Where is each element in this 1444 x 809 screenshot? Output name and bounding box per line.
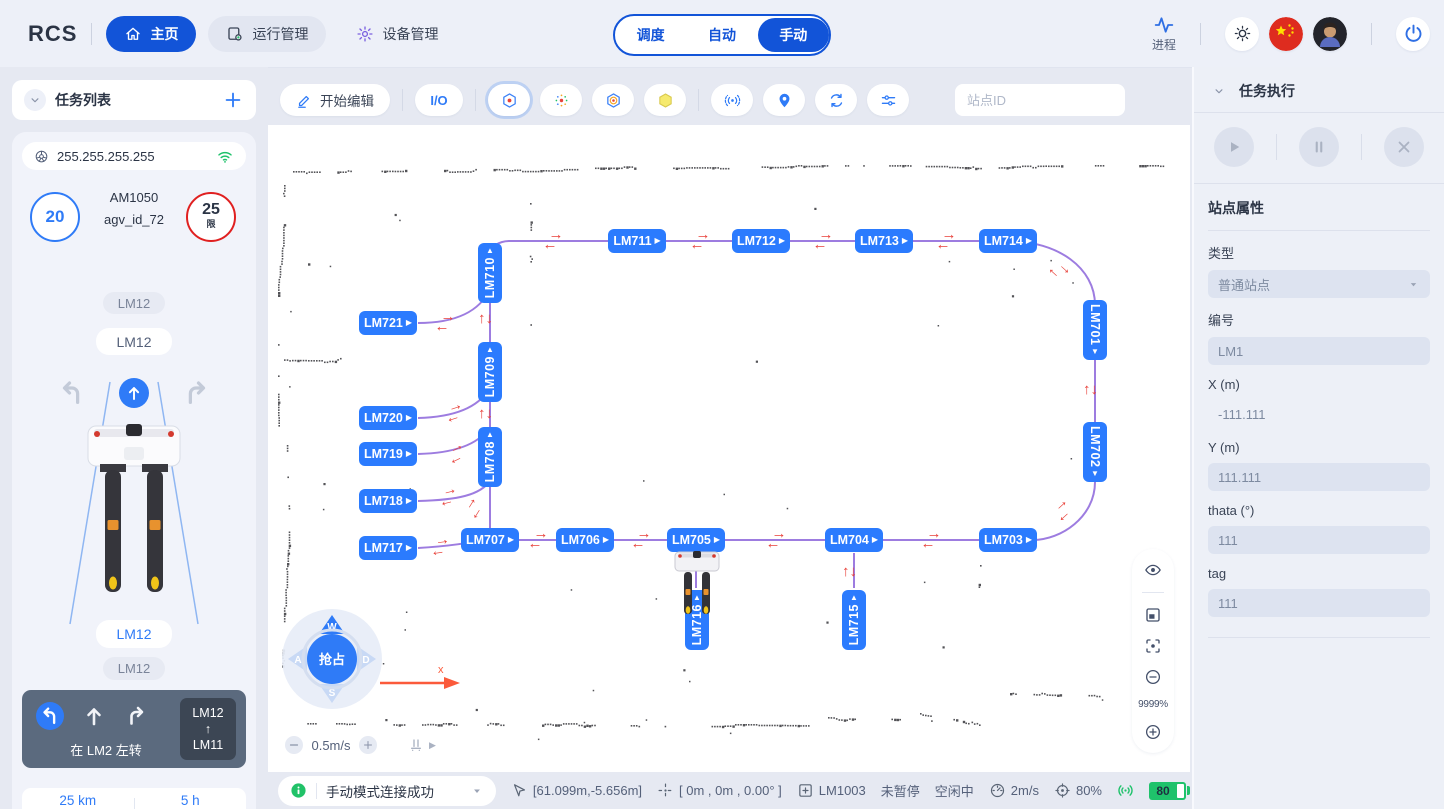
turn-left-icon (57, 378, 87, 408)
hexagon-area-icon (657, 92, 674, 109)
fork-control-button[interactable]: ▶ (392, 729, 452, 761)
up-arrow-icon (125, 384, 143, 402)
mode-toggle: 调度 自动 手动 (613, 14, 831, 56)
turn-left-active-icon (36, 702, 64, 730)
minus-icon (288, 739, 300, 751)
nav-home-label: 主页 (150, 24, 178, 44)
filter-button[interactable] (867, 84, 909, 116)
rcs-app: RCS 主页 运行管理 设备管理 调度 自动 手动 进程 (0, 0, 1444, 809)
map-station-LM704[interactable]: LM704▶ (825, 528, 883, 552)
station-badge: LM12 (96, 328, 172, 355)
map-canvas[interactable]: W A S D 抢占 x 9999% 0.5m/s (268, 125, 1190, 772)
pencil-icon (296, 92, 313, 109)
gauge-icon (989, 782, 1006, 799)
straight-direction-indicator (119, 378, 149, 408)
wifi-icon (216, 147, 234, 165)
divider (1200, 23, 1201, 45)
joystick-right-key[interactable]: D (362, 655, 369, 666)
battery-indicator: 80 (1149, 782, 1190, 800)
map-station-LM711[interactable]: LM711▶ (608, 229, 666, 253)
station-search (955, 84, 1125, 116)
steering-wheel-icon (34, 149, 49, 164)
map-station-LM701[interactable]: LM701▼ (1083, 300, 1107, 360)
target-layer-button[interactable] (592, 84, 634, 116)
waveform-icon (1152, 15, 1176, 35)
nav-device[interactable]: 设备管理 (338, 16, 456, 52)
point-cloud-button[interactable] (540, 84, 582, 116)
task-exec-header: 任务执行 (1194, 67, 1444, 112)
battery-level: 80 (1149, 784, 1177, 798)
map-station-LM703[interactable]: LM703▶ (979, 528, 1037, 552)
app-logo: RCS (28, 21, 77, 47)
sliders-icon (880, 92, 897, 109)
map-station-LM702[interactable]: LM702▼ (1083, 422, 1107, 482)
center-view-button[interactable] (1144, 637, 1162, 655)
locate-button[interactable] (763, 84, 805, 116)
x-value: -111.111 (1208, 400, 1430, 428)
type-select[interactable]: 普通站点 (1208, 270, 1430, 298)
station-id-input[interactable] (1208, 337, 1430, 365)
hexagon-target-icon (605, 92, 622, 109)
station-badge: LM12 (103, 292, 165, 314)
turn-right-icon (181, 378, 211, 408)
manual-speed-control: 0.5m/s (278, 729, 384, 761)
navbar-right: 进程 (1152, 0, 1430, 67)
area-layer-button[interactable] (644, 84, 686, 116)
china-flag-icon (1269, 17, 1303, 51)
zoom-in-button[interactable] (1144, 723, 1162, 741)
crosshair-icon (657, 782, 674, 799)
station-props-title: 站点属性 (1194, 184, 1444, 230)
joystick-seize-button[interactable]: 抢占 (319, 652, 345, 667)
lidar-button[interactable] (711, 84, 753, 116)
y-input[interactable] (1208, 463, 1430, 491)
joystick-left-key[interactable]: A (294, 655, 301, 666)
localization-quality: 80% (1054, 782, 1102, 799)
refresh-icon (828, 92, 845, 109)
map-station-LM717[interactable]: LM717▶ (359, 536, 417, 560)
x-field: X (m) -111.111 (1194, 377, 1444, 428)
speed-readout: 2m/s (989, 782, 1039, 799)
mileage-stats: 25 km 650 km 5 h 850 h (22, 788, 246, 809)
process-button[interactable]: 进程 (1152, 15, 1176, 53)
divider (91, 23, 92, 45)
nav-operation-label: 运行管理 (252, 24, 308, 44)
start-edit-button[interactable]: 开始编辑 (280, 84, 390, 116)
refresh-button[interactable] (815, 84, 857, 116)
task-exec-controls (1194, 113, 1444, 183)
cursor-icon (511, 782, 528, 799)
plus-icon (362, 739, 374, 751)
play-button[interactable] (1214, 127, 1254, 167)
info-icon (290, 782, 307, 799)
map-station-LM713[interactable]: LM713▶ (855, 229, 913, 253)
hexagon-station-icon (501, 92, 518, 109)
direction-preview (12, 378, 256, 408)
vehicle-agv-id: agv_id_72 (72, 212, 196, 227)
map-station-LM707[interactable]: LM707▶ (461, 528, 519, 552)
map-station-LM708[interactable]: ▲LM708 (478, 427, 502, 487)
tag-input[interactable] (1208, 589, 1430, 617)
station-layer-button[interactable] (488, 84, 530, 116)
fork-icon (408, 737, 424, 753)
task-exec-title: 任务执行 (1239, 81, 1295, 101)
caret-down-icon[interactable] (470, 784, 484, 798)
vehicle-model: AM1050 (72, 190, 196, 205)
type-field: 类型 普通站点 (1194, 243, 1444, 298)
navigation-hint-panel: 在 LM2 左转 LM12 ↑ LM11 (22, 690, 246, 768)
robot-pose: [ 0m , 0m , 0.00° ] (657, 782, 782, 799)
close-icon (1395, 138, 1413, 156)
zoom-level: 9999% (1138, 699, 1168, 710)
theme-button[interactable] (1225, 17, 1259, 51)
map-station-LM714[interactable]: LM714▶ (979, 229, 1037, 253)
status-message-text: 手动模式连接成功 (326, 781, 461, 801)
map-station-LM720[interactable]: LM720▶ (359, 406, 417, 430)
id-field: 编号 (1194, 310, 1444, 365)
pause-button[interactable] (1299, 127, 1339, 167)
route-badge: LM12 ↑ LM11 (180, 698, 236, 760)
map-station-LM719[interactable]: LM719▶ (359, 442, 417, 466)
gear-icon (356, 25, 374, 43)
hint-icons (36, 702, 148, 730)
straight-icon (82, 704, 106, 728)
collapse-button[interactable] (24, 89, 46, 111)
manual-speed-value: 0.5m/s (311, 738, 350, 753)
map-toolbar: 开始编辑 I/O (268, 75, 1190, 125)
mode-auto[interactable]: 自动 (686, 18, 757, 52)
vehicle-ip: 255.255.255.255 (57, 149, 208, 164)
play-icon (1225, 138, 1243, 156)
map-station-LM712[interactable]: LM712▶ (732, 229, 790, 253)
signal-status (1117, 782, 1134, 799)
chevron-down-icon (1212, 84, 1226, 98)
map-station-LM709[interactable]: ▲LM709 (478, 342, 502, 402)
task-list-panel: 任务列表 255.255.255.255 20 AM1050 agv_id_72… (0, 67, 268, 809)
guide-lines (18, 378, 250, 628)
route-path (490, 241, 1095, 545)
avatar-icon (1313, 17, 1347, 51)
user-avatar[interactable] (1313, 17, 1347, 51)
minimap-button[interactable] (1144, 606, 1162, 624)
pause-state: 未暂停 (881, 781, 920, 800)
monitor-icon (226, 25, 244, 43)
map-station-LM710[interactable]: ▲LM710 (478, 243, 502, 303)
nav-device-label: 设备管理 (382, 24, 438, 44)
current-station-badge: LM12 (96, 620, 172, 648)
home-icon (124, 25, 142, 43)
sun-icon (1233, 24, 1252, 43)
stop-button[interactable] (1384, 127, 1424, 167)
map-station-LM721[interactable]: LM721▶ (359, 311, 417, 335)
visibility-button[interactable] (1144, 561, 1162, 579)
map-station-LM715[interactable]: ▲LM715 (842, 590, 866, 650)
mode-dispatch[interactable]: 调度 (615, 18, 686, 52)
radar-icon (724, 92, 741, 109)
pause-icon (1310, 138, 1328, 156)
map-station-LM718[interactable]: LM718▶ (359, 489, 417, 513)
scatter-points-icon (553, 92, 570, 109)
cursor-position: [61.099m,-5.656m] (511, 782, 642, 799)
y-field: Y (m) (1194, 440, 1444, 491)
map-station-LM706[interactable]: LM706▶ (556, 528, 614, 552)
map-view-controls: 9999% (1132, 549, 1174, 753)
power-icon (1403, 23, 1424, 44)
task-list-title: 任务列表 (55, 90, 213, 110)
speed-limit-gauge: 25 限 (186, 192, 236, 242)
expand-icon: ▶ (429, 740, 436, 751)
status-message[interactable]: 手动模式连接成功 (278, 776, 496, 806)
idle-state: 空闲中 (935, 781, 974, 800)
task-execution-panel: 任务执行 站点属性 类型 普通站点 编号 X (m) -111.111 (1192, 67, 1444, 809)
turn-right-icon (124, 704, 148, 728)
task-list-header: 任务列表 (12, 80, 256, 120)
collapse-button[interactable] (1208, 80, 1230, 102)
io-button[interactable]: I/O (415, 84, 463, 116)
signal-icon (1117, 782, 1134, 799)
distance-stat: 25 km 650 km (22, 793, 134, 809)
nav-operation[interactable]: 运行管理 (208, 16, 326, 52)
top-navbar: RCS 主页 运行管理 设备管理 调度 自动 手动 进程 (0, 0, 1444, 68)
add-task-button[interactable] (222, 89, 244, 111)
nav-home[interactable]: 主页 (106, 16, 196, 52)
hint-text: 在 LM2 左转 (36, 740, 176, 759)
tag-field: tag (1194, 566, 1444, 617)
speed-increase-button[interactable] (359, 736, 377, 754)
zoom-out-button[interactable] (1144, 668, 1162, 686)
station-search-input[interactable] (965, 92, 1145, 109)
vehicle-ip-field[interactable]: 255.255.255.255 (22, 142, 246, 170)
location-pin-icon (776, 92, 793, 109)
chevron-down-icon (28, 93, 42, 107)
divider (1371, 23, 1372, 45)
status-bar: 手动模式连接成功 [61.099m,-5.656m] [ 0m , 0m , 0… (268, 772, 1190, 809)
process-label: 进程 (1152, 36, 1176, 53)
map-station-LM716[interactable]: ▲LM716 (685, 590, 709, 650)
theta-input[interactable] (1208, 526, 1430, 554)
speed-decrease-button[interactable] (285, 736, 303, 754)
station-badge: LM12 (103, 657, 165, 680)
map-station-LM705[interactable]: LM705▶ (667, 528, 725, 552)
forklift-image (74, 420, 194, 615)
language-button[interactable] (1269, 17, 1303, 51)
caret-down-icon (1407, 278, 1420, 291)
power-button[interactable] (1396, 17, 1430, 51)
add-station-icon (797, 782, 814, 799)
target-icon (1054, 782, 1071, 799)
joystick[interactable]: W A S D 抢占 (280, 607, 384, 711)
joystick-down-key[interactable]: S (329, 688, 336, 699)
vehicle-card: 255.255.255.255 20 AM1050 agv_id_72 25 限… (12, 132, 256, 809)
hours-stat: 5 h 850 h (135, 793, 247, 809)
mode-manual[interactable]: 手动 (758, 18, 829, 52)
theta-field: thata (°) (1194, 503, 1444, 554)
vehicle-info: AM1050 agv_id_72 (72, 190, 196, 234)
current-station: LM1003 (797, 782, 866, 799)
